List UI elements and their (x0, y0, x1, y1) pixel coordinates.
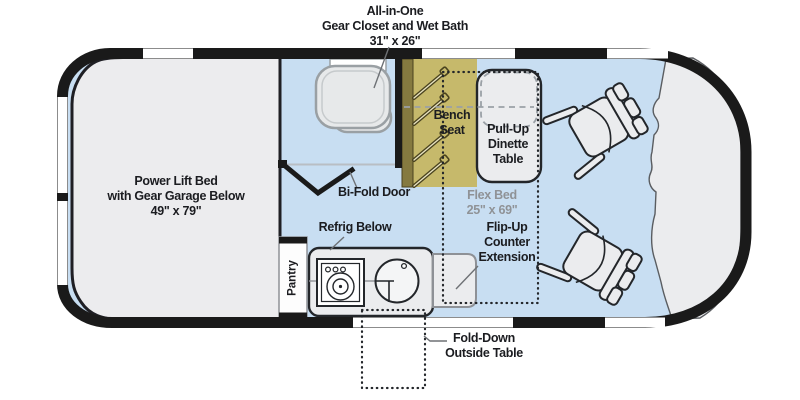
power-lift-bed-label: Power Lift Bed with Gear Garage Below 49… (107, 174, 244, 219)
pantry-label: Pantry (286, 260, 301, 296)
flip-up-counter-label: Flip-Up Counter Extension (478, 220, 535, 265)
window-segment (422, 49, 515, 59)
bifold-door-label: Bi-Fold Door (338, 185, 410, 200)
refrig-label: Refrig Below (319, 220, 392, 235)
window-segment (58, 97, 68, 193)
window-segment (143, 49, 193, 59)
window-segment (607, 49, 668, 59)
stove-icon (317, 259, 364, 306)
floorplan-canvas: All-in-One Gear Closet and Wet Bath 31" … (0, 0, 800, 400)
toilet-icon (316, 59, 391, 132)
kitchen-counter (309, 248, 433, 316)
flex-bed-label: Flex Bed 25" x 69" (467, 188, 518, 218)
window-segment (58, 201, 68, 285)
leader-fold-down (424, 336, 447, 341)
sliding-door-opening (353, 318, 513, 328)
counter-extension (433, 254, 476, 307)
wet-bath-right-wall (395, 53, 402, 168)
bench-seat-label: Bench Seat (434, 108, 471, 138)
gear-closet-label: All-in-One Gear Closet and Wet Bath 31" … (322, 4, 468, 49)
dinette-table-label: Pull-Up Dinette Table (487, 122, 529, 167)
sink-icon (376, 260, 419, 303)
window-segment (605, 318, 665, 328)
fold-down-table-label: Fold-Down Outside Table (445, 331, 523, 361)
